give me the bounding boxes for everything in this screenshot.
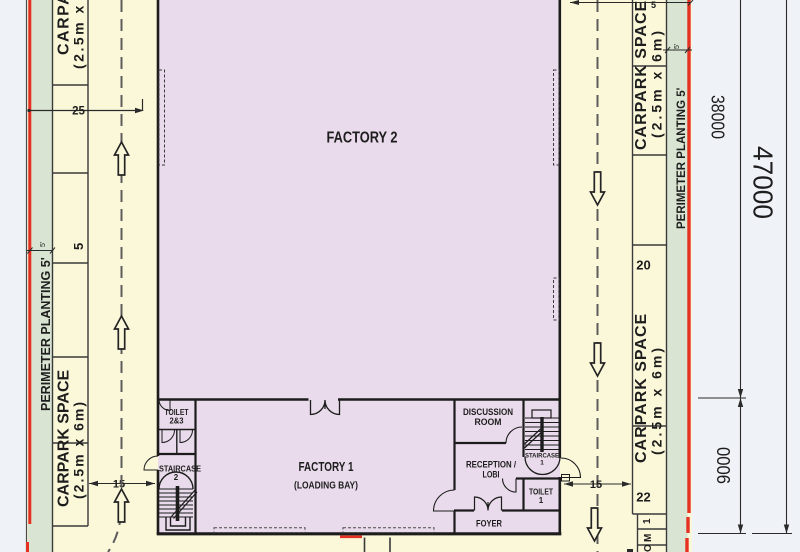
svg-text:9000: 9000	[714, 447, 734, 484]
svg-text:O: O	[643, 544, 654, 552]
svg-text:20: 20	[636, 258, 650, 273]
svg-text:FACTORY 1: FACTORY 1	[299, 459, 354, 474]
svg-text:(2.5m x 6m): (2.5m x 6m)	[71, 0, 87, 69]
svg-text:5: 5	[651, 0, 656, 10]
svg-text:CARPARK SPACE: CARPARK SPACE	[633, 313, 650, 463]
svg-text:PERIMETER PLANTING 5': PERIMETER PLANTING 5'	[676, 87, 688, 229]
svg-text:PERIMETER PLANTING 5': PERIMETER PLANTING 5'	[39, 257, 53, 411]
svg-text:FOYER: FOYER	[476, 519, 502, 529]
svg-text:38000: 38000	[708, 95, 728, 139]
svg-text:5': 5'	[674, 44, 681, 49]
svg-text:LOBI: LOBI	[483, 470, 500, 481]
svg-text:(2.5m x 6m): (2.5m x 6m)	[649, 345, 665, 455]
svg-text:ROOM: ROOM	[475, 417, 502, 428]
svg-text:22: 22	[636, 490, 650, 505]
svg-text:2&3: 2&3	[170, 416, 184, 426]
svg-text:STAIRCASE: STAIRCASE	[159, 465, 202, 474]
svg-text:1: 1	[539, 496, 544, 505]
svg-text:STAIRCASE: STAIRCASE	[525, 453, 560, 460]
svg-text:15: 15	[113, 479, 125, 491]
svg-text:15: 15	[590, 479, 602, 491]
svg-text:(LOADING BAY): (LOADING BAY)	[294, 481, 358, 492]
svg-text:FACTORY 2: FACTORY 2	[327, 130, 398, 147]
svg-text:(2.5m x 6m): (2.5m x 6m)	[71, 400, 87, 499]
svg-text:5': 5'	[40, 242, 47, 247]
svg-text:1: 1	[642, 518, 653, 524]
svg-text:CARPARK SPACE: CARPARK SPACE	[633, 0, 650, 150]
svg-text:(2.5m x 6m): (2.5m x 6m)	[649, 28, 665, 138]
svg-text:25: 25	[72, 106, 85, 118]
svg-text:47000: 47000	[748, 146, 779, 219]
svg-text:1: 1	[540, 460, 544, 467]
svg-text:5: 5	[71, 243, 86, 250]
svg-text:M: M	[643, 534, 654, 542]
svg-text:2: 2	[174, 473, 179, 482]
